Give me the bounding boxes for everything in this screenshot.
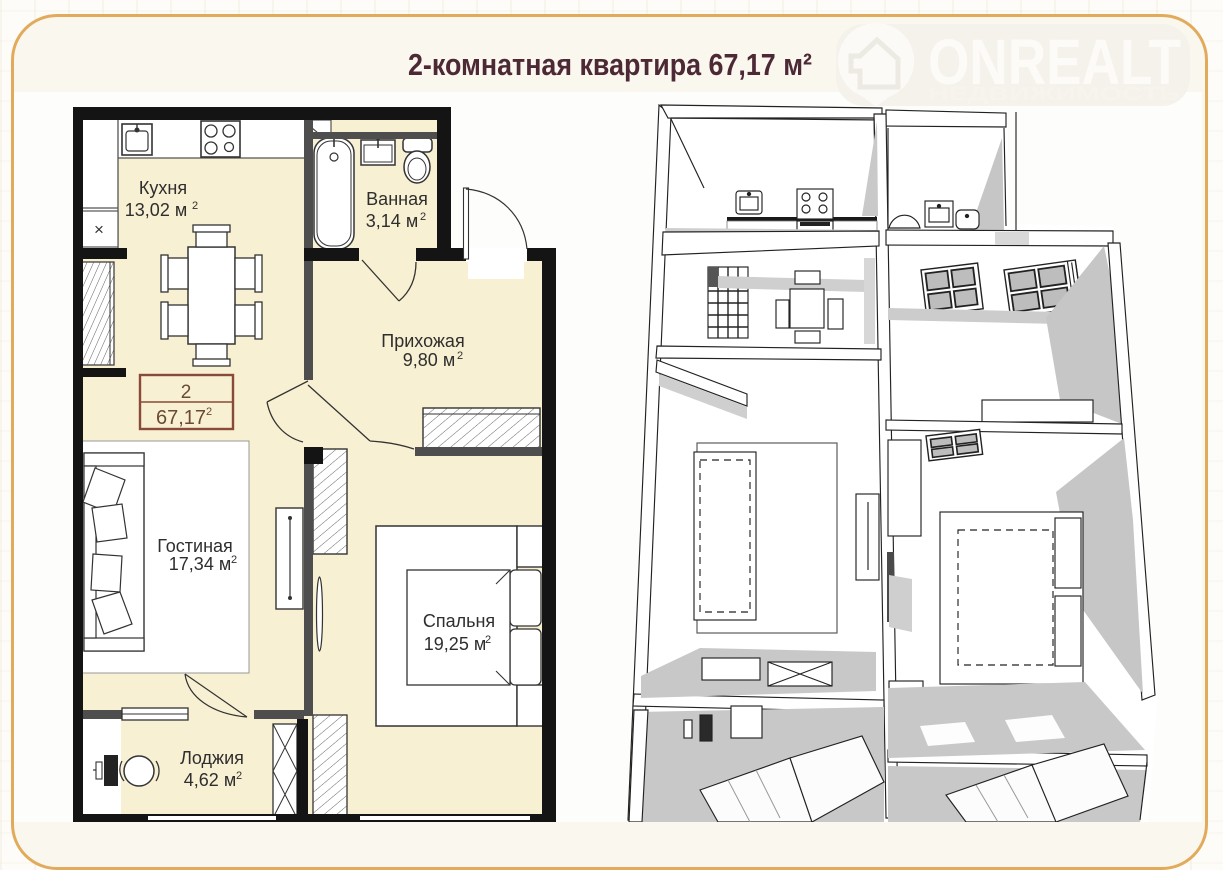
svg-text:Лоджия: Лоджия (180, 748, 244, 768)
svg-text:2: 2 (485, 634, 491, 646)
svg-text:9,80 м: 9,80 м (403, 350, 455, 370)
svg-text:13,02 м: 13,02 м (125, 200, 187, 220)
svg-text:2: 2 (420, 211, 426, 223)
svg-text:Спальня: Спальня (423, 611, 495, 631)
svg-text:4,62 м: 4,62 м (184, 770, 236, 790)
svg-text:2: 2 (206, 406, 212, 418)
svg-text:НЕДВИЖИМОСТЬ: НЕДВИЖИМОСТЬ (928, 84, 1180, 104)
svg-text:19,25 м: 19,25 м (424, 634, 486, 654)
svg-text:Гостиная: Гостиная (157, 536, 233, 556)
svg-text:17,34 м: 17,34 м (169, 554, 231, 574)
svg-text:2: 2 (231, 554, 237, 566)
svg-text:×: × (94, 220, 104, 239)
svg-text:2-комнатная квартира 67,17 м²: 2-комнатная квартира 67,17 м² (408, 48, 812, 82)
svg-text:3,14 м: 3,14 м (366, 211, 418, 231)
svg-text:2: 2 (457, 350, 463, 362)
svg-text:Ванная: Ванная (366, 189, 428, 209)
svg-text:2: 2 (181, 382, 192, 403)
svg-text:67,17: 67,17 (156, 407, 206, 429)
svg-text:2: 2 (192, 200, 198, 212)
svg-text:Прихожая: Прихожая (381, 331, 464, 351)
svg-text:Кухня: Кухня (139, 178, 187, 198)
svg-text:2: 2 (236, 770, 242, 782)
